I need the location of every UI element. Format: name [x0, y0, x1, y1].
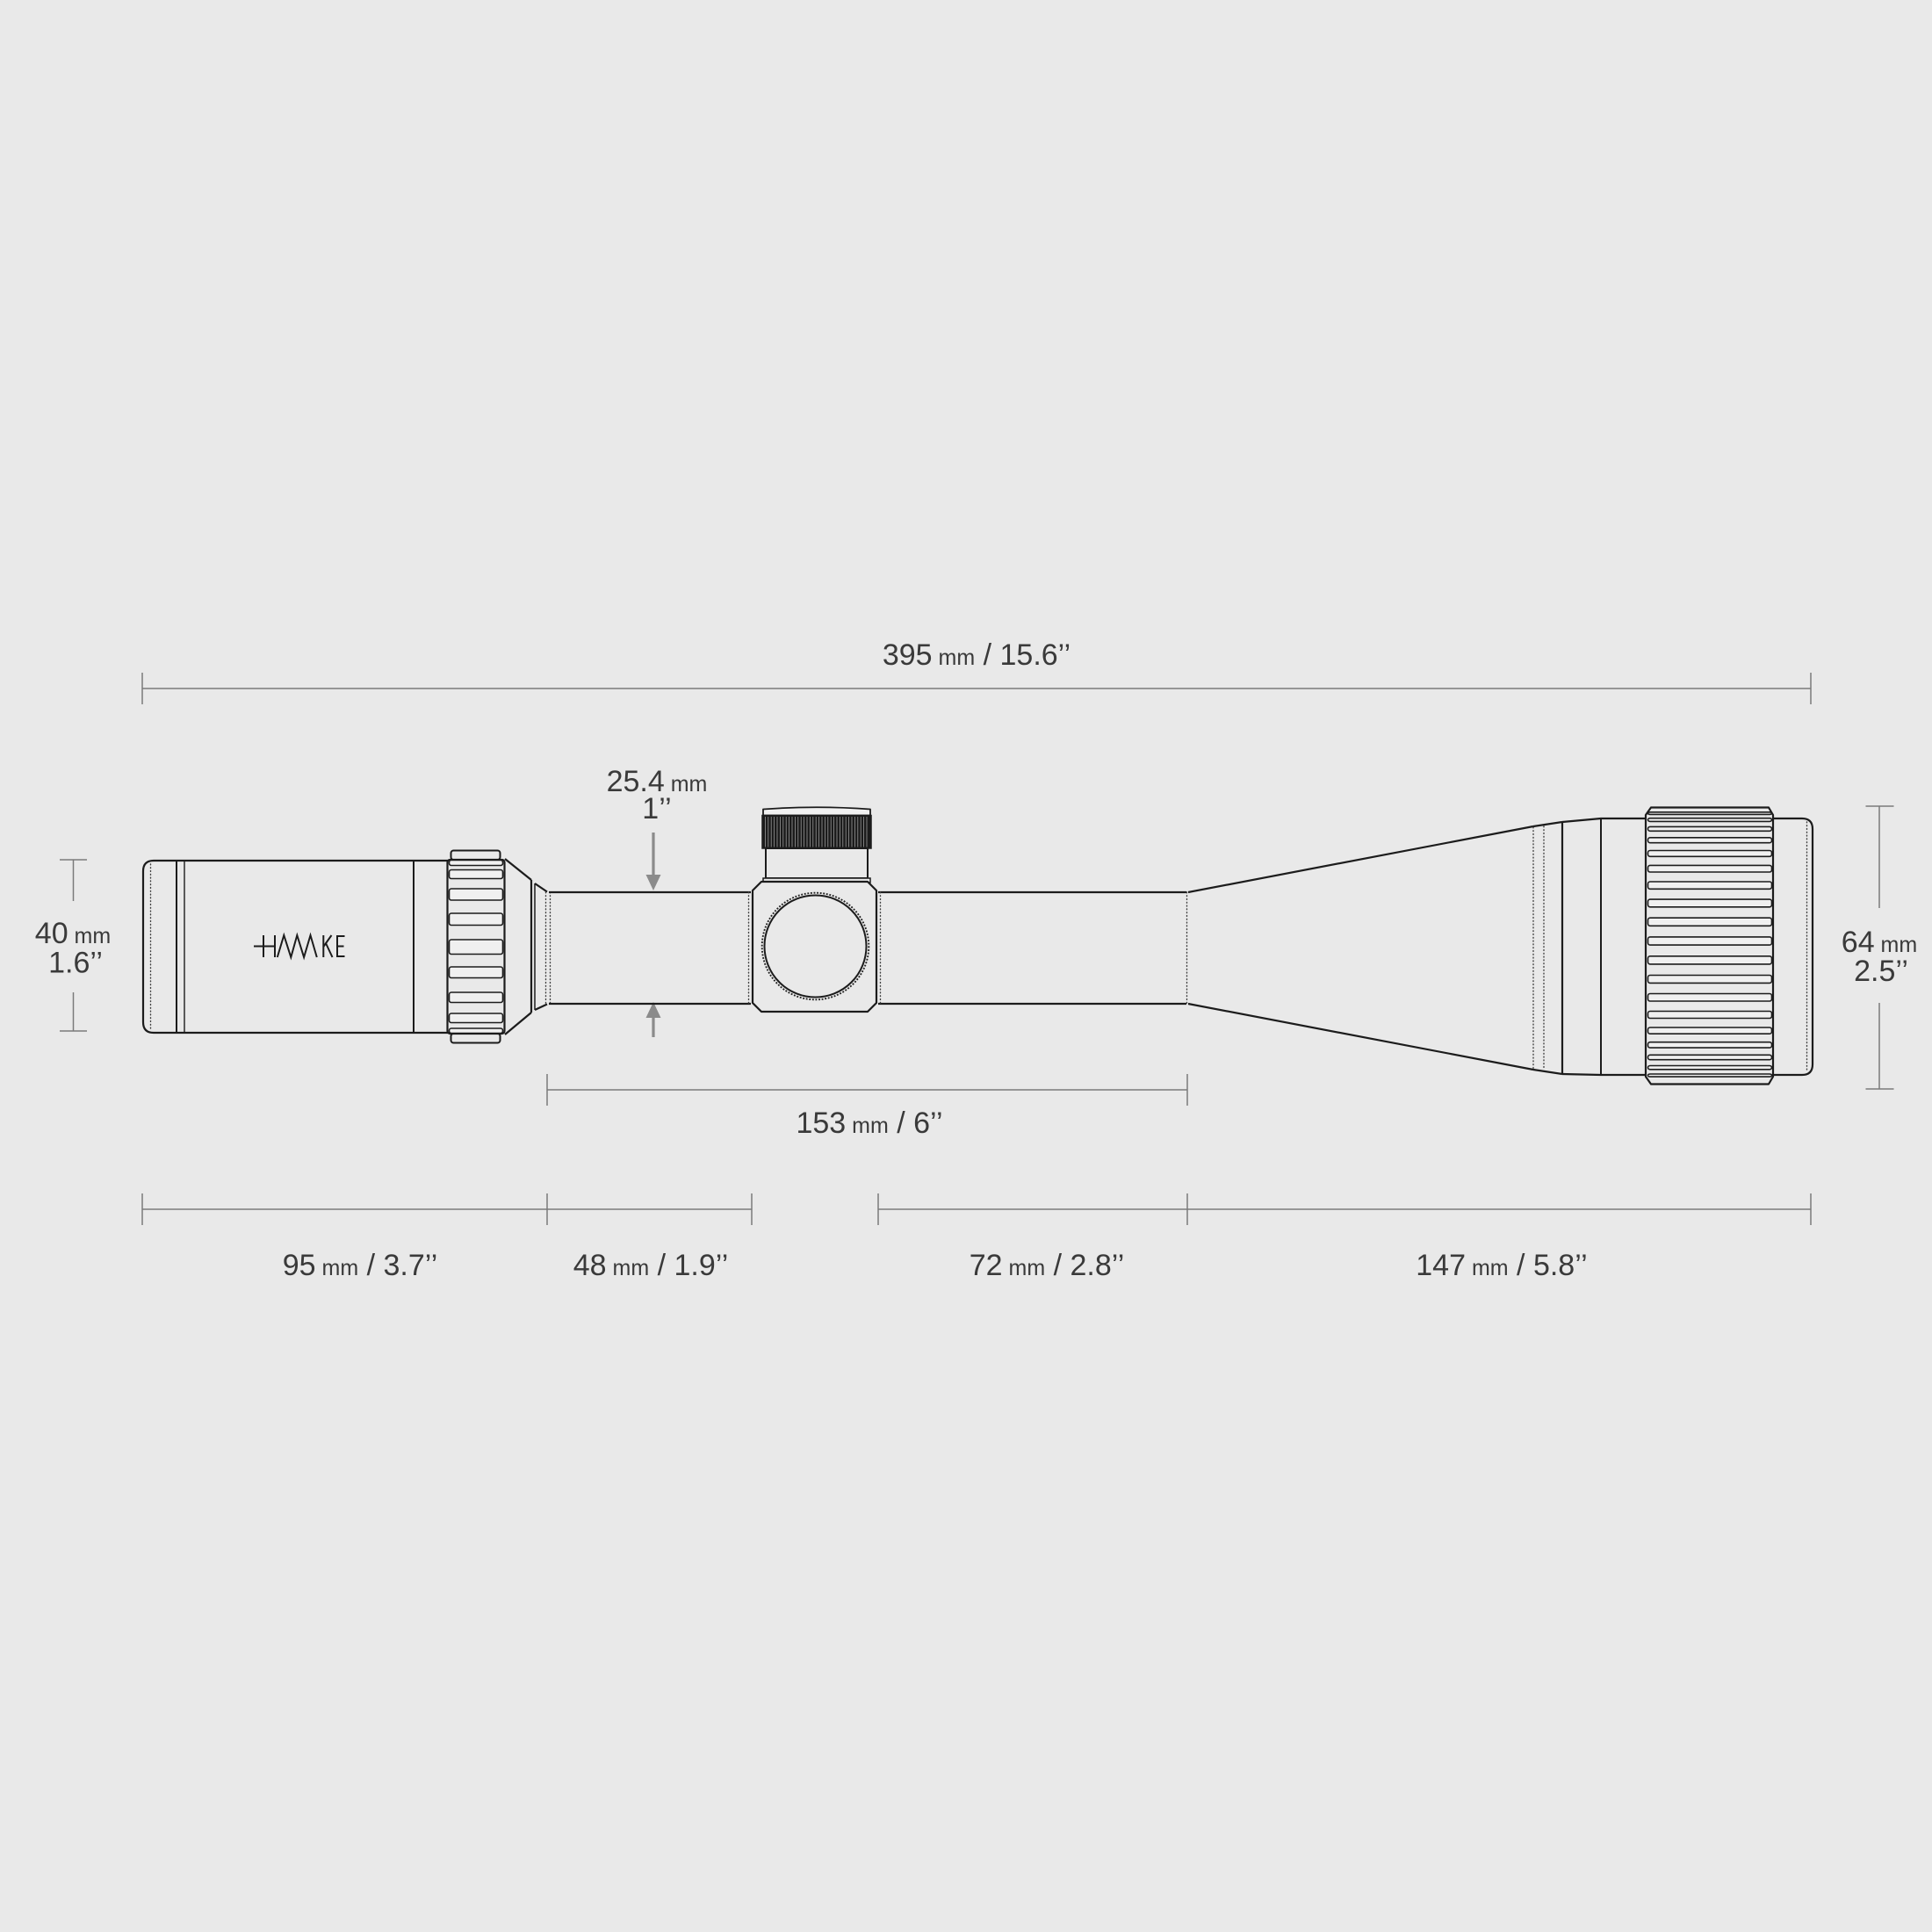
- svg-text:1’’: 1’’: [642, 792, 671, 825]
- svg-text:1.6’’: 1.6’’: [48, 947, 103, 980]
- svg-text:48 mm / 1.9’’: 48 mm / 1.9’’: [573, 1249, 729, 1282]
- svg-text:2.5’’: 2.5’’: [1854, 955, 1908, 988]
- svg-text:72 mm / 2.8’’: 72 mm / 2.8’’: [970, 1249, 1125, 1282]
- svg-text:395 mm / 15.6’’: 395 mm / 15.6’’: [883, 638, 1071, 672]
- svg-text:95 mm / 3.7’’: 95 mm / 3.7’’: [283, 1249, 438, 1282]
